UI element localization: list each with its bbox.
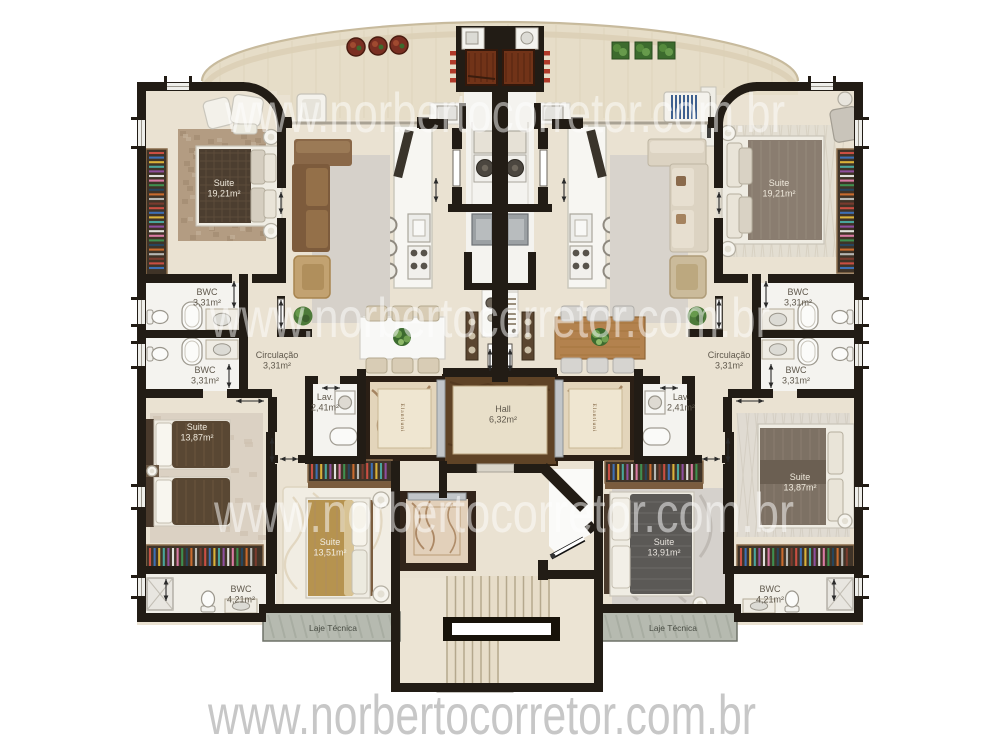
- svg-text:BWC4,21m²: BWC4,21m²: [227, 584, 255, 605]
- svg-text:Elantiuni: Elantiuni: [399, 403, 405, 432]
- svg-text:BWC3,31m²: BWC3,31m²: [782, 365, 810, 386]
- svg-text:BWC4,21m²: BWC4,21m²: [756, 584, 784, 605]
- svg-text:BWC3,31m²: BWC3,31m²: [784, 287, 812, 308]
- svg-text:www.norbertocorretor.com.br: www.norbertocorretor.com.br: [207, 683, 756, 742]
- svg-text:Laje Técnica: Laje Técnica: [649, 623, 697, 633]
- svg-text:Laje Técnica: Laje Técnica: [309, 623, 357, 633]
- svg-text:www.norbertocorretor.com.br: www.norbertocorretor.com.br: [213, 481, 794, 544]
- svg-text:www.norbertocorretor.com.br: www.norbertocorretor.com.br: [224, 81, 785, 144]
- svg-text:BWC3,31m²: BWC3,31m²: [191, 365, 219, 386]
- svg-text:www.norbertocorretor.com.br: www.norbertocorretor.com.br: [209, 286, 770, 349]
- svg-text:Elantiuni: Elantiuni: [591, 403, 597, 432]
